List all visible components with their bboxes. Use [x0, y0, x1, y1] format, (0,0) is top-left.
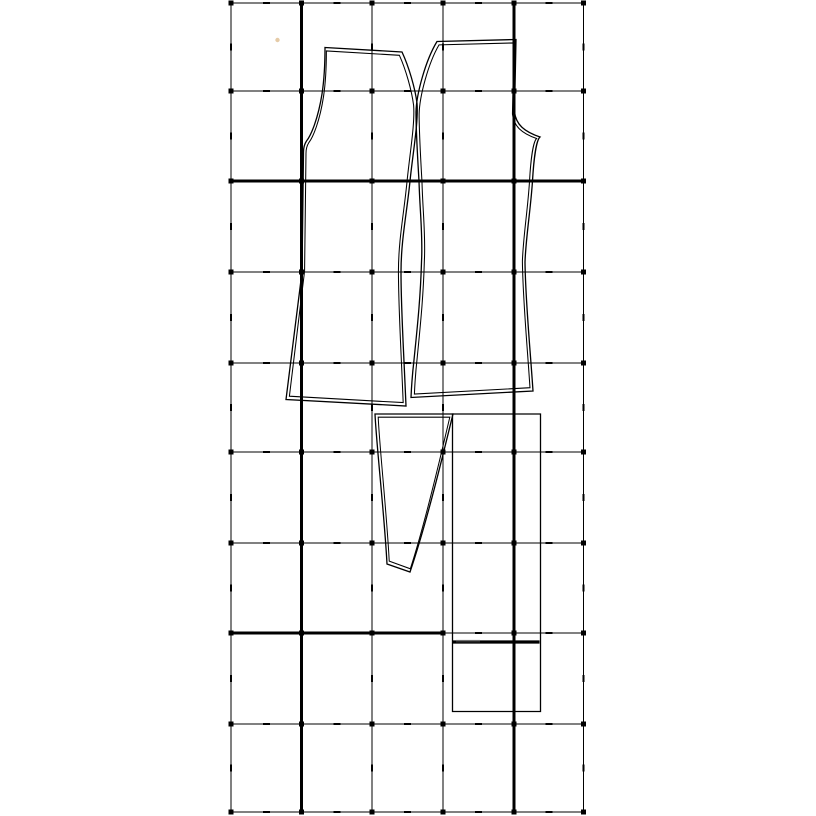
grid-midpoint-tick: [582, 133, 584, 140]
grid-midpoint-tick: [371, 675, 373, 682]
grid-midpoint-tick: [404, 542, 411, 544]
grid-midpoint-tick: [371, 223, 373, 230]
grid-intersection-dot: [441, 179, 446, 184]
grid-midpoint-tick: [404, 362, 411, 364]
grid-midpoint-tick: [545, 2, 552, 4]
grid-midpoint-tick: [475, 180, 482, 182]
grid-midpoint-tick: [263, 723, 270, 725]
grid-midpoint-tick: [371, 404, 373, 411]
grid-midpoint-tick: [333, 180, 340, 182]
grid-midpoint-tick: [333, 2, 340, 4]
grid-intersection-dot: [581, 450, 586, 455]
grid-intersection-dot: [512, 722, 517, 727]
back-panel-seam-line: [289, 51, 413, 403]
grid-midpoint-tick: [263, 90, 270, 92]
grid-intersection-dot: [512, 631, 517, 636]
gore-panel-seam-line: [378, 417, 450, 569]
grid-midpoint-tick: [475, 542, 482, 544]
grid-midpoint-tick: [513, 404, 515, 411]
grid-intersection-dot: [581, 722, 586, 727]
grid-intersection-dot: [299, 89, 304, 94]
grid-midpoint-tick: [404, 271, 411, 273]
grid-midpoint-tick: [513, 585, 515, 592]
grid-midpoint-tick: [333, 632, 340, 634]
grid-midpoint-tick: [300, 133, 302, 140]
grid-midpoint-tick: [371, 765, 373, 772]
grid-intersection-dot: [581, 270, 586, 275]
grid-intersection-dot: [512, 541, 517, 546]
grid-midpoint-tick: [263, 362, 270, 364]
grid-intersection-dot: [512, 361, 517, 366]
grid-midpoint-tick: [582, 585, 584, 592]
grid-midpoint-tick: [475, 811, 482, 813]
pattern-layout-canvas: [0, 0, 816, 816]
grid-midpoint-tick: [404, 90, 411, 92]
grid-midpoint-tick: [230, 314, 232, 321]
grid-midpoint-tick: [442, 494, 444, 501]
grid-intersection-dot: [370, 631, 375, 636]
grid-midpoint-tick: [333, 362, 340, 364]
grid-intersection-dot: [299, 450, 304, 455]
grid-intersection-dot: [512, 1, 517, 6]
grid-midpoint-tick: [545, 271, 552, 273]
grid-midpoint-tick: [475, 2, 482, 4]
grid-midpoint-tick: [333, 723, 340, 725]
grid-intersection-dot: [229, 722, 234, 727]
grid-intersection-dot: [581, 541, 586, 546]
grid-midpoint-tick: [545, 632, 552, 634]
grid-midpoint-tick: [371, 494, 373, 501]
grid-midpoint-tick: [263, 451, 270, 453]
pattern-piece-rectangle-panel[interactable]: [453, 414, 541, 712]
grid-midpoint-tick: [300, 585, 302, 592]
grid-midpoint-tick: [333, 451, 340, 453]
front-panel-cut-line[interactable]: [411, 40, 540, 398]
faint-label-smudge: [456, 640, 480, 643]
grid-midpoint-tick: [263, 542, 270, 544]
grid-midpoint-tick: [475, 723, 482, 725]
grid-midpoint-tick: [475, 362, 482, 364]
marks-layer: [275, 38, 480, 643]
grid-intersection-dot: [370, 361, 375, 366]
grid-midpoint-tick: [442, 223, 444, 230]
grid-intersection-dot: [512, 270, 517, 275]
grid-midpoint-tick: [545, 723, 552, 725]
grid-midpoint-tick: [230, 44, 232, 51]
grid-midpoint-tick: [582, 404, 584, 411]
grid-intersection-dot: [229, 631, 234, 636]
grid-midpoint-tick: [371, 314, 373, 321]
grid-intersection-dot: [512, 179, 517, 184]
grid-midpoint-tick: [475, 271, 482, 273]
pattern-piece-front-panel[interactable]: [411, 40, 540, 398]
grid-intersection-dot: [581, 1, 586, 6]
grid-intersection-dot: [441, 541, 446, 546]
grid-intersection-dot: [441, 722, 446, 727]
grid-midpoint-tick: [404, 811, 411, 813]
grid-midpoint-tick: [582, 765, 584, 772]
grid-midpoint-tick: [545, 542, 552, 544]
grid-midpoint-tick: [300, 494, 302, 501]
grid-layer: [229, 1, 587, 815]
front-panel-seam-line: [414, 43, 536, 394]
grid-intersection-dot: [299, 361, 304, 366]
grid-midpoint-tick: [230, 675, 232, 682]
grid-intersection-dot: [581, 89, 586, 94]
grid-intersection-dot: [370, 541, 375, 546]
grid-midpoint-tick: [513, 314, 515, 321]
grid-midpoint-tick: [582, 675, 584, 682]
grid-midpoint-tick: [442, 133, 444, 140]
grid-midpoint-tick: [404, 451, 411, 453]
grid-midpoint-tick: [513, 765, 515, 772]
grid-midpoint-tick: [404, 2, 411, 4]
grid-intersection-dot: [229, 450, 234, 455]
grid-intersection-dot: [441, 810, 446, 815]
grid-intersection-dot: [370, 810, 375, 815]
grid-midpoint-tick: [545, 811, 552, 813]
grid-intersection-dot: [299, 631, 304, 636]
pattern-piece-back-panel[interactable]: [286, 48, 417, 407]
gore-panel-cut-line[interactable]: [375, 414, 453, 572]
grid-intersection-dot: [581, 810, 586, 815]
grid-midpoint-tick: [263, 632, 270, 634]
grid-midpoint-tick: [582, 223, 584, 230]
grid-intersection-dot: [441, 1, 446, 6]
grid-midpoint-tick: [263, 2, 270, 4]
sewing-pattern-svg: [0, 0, 816, 816]
grid-midpoint-tick: [230, 223, 232, 230]
back-panel-cut-line[interactable]: [286, 48, 417, 407]
grid-intersection-dot: [229, 270, 234, 275]
grid-midpoint-tick: [545, 362, 552, 364]
grid-midpoint-tick: [333, 90, 340, 92]
grid-intersection-dot: [229, 361, 234, 366]
grid-midpoint-tick: [300, 675, 302, 682]
stray-dot: [275, 38, 279, 42]
grid-midpoint-tick: [513, 494, 515, 501]
grid-intersection-dot: [441, 631, 446, 636]
grid-intersection-dot: [370, 270, 375, 275]
grid-midpoint-tick: [300, 765, 302, 772]
grid-midpoint-tick: [404, 723, 411, 725]
grid-midpoint-tick: [300, 314, 302, 321]
grid-intersection-dot: [370, 89, 375, 94]
grid-intersection-dot: [441, 89, 446, 94]
grid-intersection-dot: [512, 810, 517, 815]
grid-midpoint-tick: [333, 811, 340, 813]
grid-midpoint-tick: [230, 404, 232, 411]
grid-midpoint-tick: [404, 632, 411, 634]
grid-midpoint-tick: [263, 180, 270, 182]
grid-midpoint-tick: [442, 675, 444, 682]
pattern-pieces-layer: [286, 40, 541, 712]
grid-intersection-dot: [299, 541, 304, 546]
grid-intersection-dot: [229, 179, 234, 184]
grid-midpoint-tick: [333, 542, 340, 544]
grid-midpoint-tick: [582, 314, 584, 321]
grid-midpoint-tick: [545, 180, 552, 182]
grid-midpoint-tick: [230, 765, 232, 772]
grid-midpoint-tick: [442, 314, 444, 321]
grid-midpoint-tick: [230, 494, 232, 501]
grid-midpoint-tick: [545, 90, 552, 92]
grid-midpoint-tick: [513, 675, 515, 682]
grid-intersection-dot: [581, 179, 586, 184]
grid-intersection-dot: [299, 1, 304, 6]
grid-intersection-dot: [370, 722, 375, 727]
grid-midpoint-tick: [371, 44, 373, 51]
grid-midpoint-tick: [371, 133, 373, 140]
grid-intersection-dot: [441, 270, 446, 275]
grid-midpoint-tick: [513, 133, 515, 140]
grid-midpoint-tick: [442, 585, 444, 592]
grid-midpoint-tick: [263, 271, 270, 273]
grid-intersection-dot: [229, 541, 234, 546]
grid-intersection-dot: [370, 450, 375, 455]
grid-intersection-dot: [581, 631, 586, 636]
grid-midpoint-tick: [582, 44, 584, 51]
grid-midpoint-tick: [475, 451, 482, 453]
grid-intersection-dot: [229, 89, 234, 94]
grid-midpoint-tick: [545, 451, 552, 453]
grid-intersection-dot: [512, 89, 517, 94]
grid-intersection-dot: [299, 810, 304, 815]
grid-intersection-dot: [370, 179, 375, 184]
grid-intersection-dot: [370, 1, 375, 6]
grid-midpoint-tick: [230, 133, 232, 140]
grid-midpoint-tick: [333, 271, 340, 273]
grid-midpoint-tick: [230, 585, 232, 592]
grid-midpoint-tick: [513, 223, 515, 230]
grid-midpoint-tick: [582, 494, 584, 501]
grid-midpoint-tick: [263, 811, 270, 813]
pattern-piece-gore-panel[interactable]: [375, 414, 453, 572]
grid-intersection-dot: [229, 1, 234, 6]
rectangle-panel-cut-line[interactable]: [453, 414, 541, 712]
grid-intersection-dot: [441, 361, 446, 366]
grid-intersection-dot: [229, 810, 234, 815]
grid-midpoint-tick: [300, 404, 302, 411]
grid-midpoint-tick: [300, 44, 302, 51]
grid-intersection-dot: [299, 722, 304, 727]
grid-midpoint-tick: [442, 765, 444, 772]
grid-intersection-dot: [581, 361, 586, 366]
grid-intersection-dot: [512, 450, 517, 455]
grid-midpoint-tick: [475, 632, 482, 634]
grid-midpoint-tick: [475, 90, 482, 92]
grid-midpoint-tick: [442, 404, 444, 411]
grid-midpoint-tick: [371, 585, 373, 592]
